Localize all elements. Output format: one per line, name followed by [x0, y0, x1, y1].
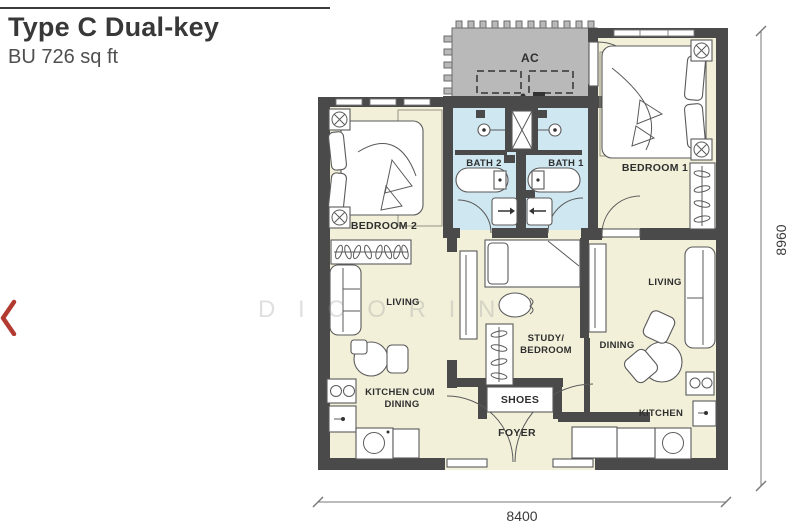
label-kitchen-cum-dining-1: KITCHEN CUM — [365, 387, 435, 398]
tv-console — [460, 251, 477, 339]
label-kitchen: KITCHEN — [639, 408, 683, 419]
label-kitchen-cum-dining-2: DINING — [384, 399, 419, 410]
label-study-2: BEDROOM — [520, 345, 572, 356]
dimension-height: 8960 — [773, 224, 789, 255]
ceiling-fan-icon — [691, 139, 712, 160]
chair — [499, 293, 531, 317]
label-ac: AC — [521, 51, 539, 65]
label-bath2: BATH 2 — [466, 158, 501, 169]
label-bath1: BATH 1 — [548, 158, 584, 169]
ceiling-fan-icon — [329, 207, 350, 228]
label-dining: DINING — [599, 340, 634, 351]
label-bedroom1: BEDROOM 1 — [622, 162, 688, 174]
floor-plan: D I C O R I N AC BATH 2 BATH 1 BEDROOM 2… — [0, 0, 800, 532]
ceiling-fan-icon — [691, 40, 712, 61]
chair — [351, 340, 367, 354]
label-bedroom2: BEDROOM 2 — [351, 220, 417, 232]
label-study-1: STUDY/ — [528, 333, 565, 344]
label-foyer: FOYER — [498, 427, 536, 439]
ceiling-fan-icon — [329, 109, 350, 130]
label-living-left: LIVING — [386, 297, 419, 308]
label-shoes: SHOES — [501, 394, 539, 406]
counter — [572, 427, 617, 458]
label-living-right: LIVING — [648, 277, 681, 288]
chair — [387, 345, 408, 373]
dimension-width: 8400 — [506, 508, 537, 524]
bed — [341, 121, 423, 215]
counter — [393, 429, 419, 458]
counter — [617, 428, 655, 458]
watermark-text: D I C O R I N — [258, 296, 503, 323]
tv-console — [589, 244, 606, 332]
